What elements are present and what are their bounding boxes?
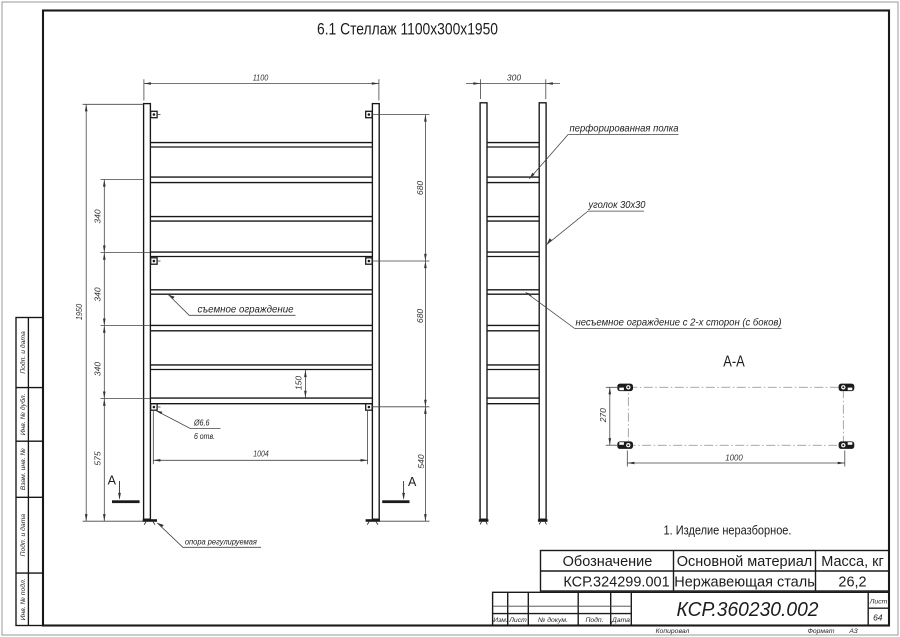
svg-text:перфорированная полка: перфорированная полка bbox=[570, 123, 679, 135]
svg-text:680: 680 bbox=[415, 309, 425, 323]
svg-text:Нержавеющая сталь: Нержавеющая сталь bbox=[674, 575, 815, 591]
svg-text:опора регулируемая: опора регулируемая bbox=[185, 537, 257, 547]
svg-text:Инв. № подл.: Инв. № подл. bbox=[19, 578, 27, 620]
svg-text:А: А bbox=[108, 474, 117, 488]
svg-text:150: 150 bbox=[293, 376, 303, 390]
svg-text:64: 64 bbox=[873, 613, 883, 623]
svg-text:Масса, кг: Масса, кг bbox=[821, 554, 884, 570]
svg-text:Формат: Формат bbox=[808, 628, 835, 635]
svg-text:№ докум.: № докум. bbox=[538, 616, 568, 624]
svg-text:Инв. № дубл.: Инв. № дубл. bbox=[19, 393, 27, 435]
svg-text:Подп. и дата: Подп. и дата bbox=[19, 331, 27, 374]
svg-text:Взам. инв. №: Взам. инв. № bbox=[20, 448, 27, 490]
svg-text:Обозначение: Обозначение bbox=[563, 554, 653, 570]
svg-text:Подп.: Подп. bbox=[585, 616, 603, 624]
svg-text:Ø6,6: Ø6,6 bbox=[193, 418, 210, 428]
svg-text:несъемное ограждение с 2-х сто: несъемное ограждение с 2-х сторон (с бок… bbox=[576, 316, 782, 328]
svg-text:КСР.360230.002: КСР.360230.002 bbox=[677, 598, 820, 621]
svg-text:340: 340 bbox=[93, 287, 103, 301]
svg-text:А-А: А-А bbox=[723, 354, 745, 371]
svg-text:Изм.: Изм. bbox=[493, 617, 508, 624]
svg-text:540: 540 bbox=[416, 454, 426, 468]
svg-text:А: А bbox=[408, 475, 417, 489]
svg-text:КСР.324299.001: КСР.324299.001 bbox=[563, 575, 669, 591]
svg-text:300: 300 bbox=[507, 72, 521, 82]
svg-text:1. Изделие неразборное.: 1. Изделие неразборное. bbox=[664, 524, 792, 538]
svg-text:А3: А3 bbox=[848, 628, 858, 635]
svg-text:Копировал: Копировал bbox=[656, 628, 690, 635]
svg-text:уголок 30х30: уголок 30х30 bbox=[588, 200, 646, 211]
svg-text:1004: 1004 bbox=[253, 449, 269, 459]
svg-text:6 отв.: 6 отв. bbox=[194, 431, 215, 441]
svg-text:1000: 1000 bbox=[725, 453, 743, 463]
svg-text:Лист: Лист bbox=[869, 599, 888, 606]
svg-text:340: 340 bbox=[93, 209, 103, 223]
svg-text:Лист: Лист bbox=[508, 617, 527, 624]
svg-text:680: 680 bbox=[415, 181, 425, 195]
svg-text:340: 340 bbox=[93, 362, 103, 376]
svg-text:6.1 Стеллаж 1100х300х1950: 6.1 Стеллаж 1100х300х1950 bbox=[317, 19, 498, 38]
svg-text:1100: 1100 bbox=[253, 72, 269, 82]
svg-text:1950: 1950 bbox=[74, 304, 84, 321]
svg-text:26,2: 26,2 bbox=[838, 575, 866, 591]
svg-text:Дата: Дата bbox=[611, 617, 630, 624]
svg-text:575: 575 bbox=[93, 451, 103, 465]
svg-text:Основной материал: Основной материал bbox=[677, 554, 812, 570]
svg-text:съемное ограждение: съемное ограждение bbox=[198, 304, 294, 315]
svg-text:270: 270 bbox=[598, 408, 608, 423]
svg-text:Подп. и дата: Подп. и дата bbox=[19, 514, 27, 557]
